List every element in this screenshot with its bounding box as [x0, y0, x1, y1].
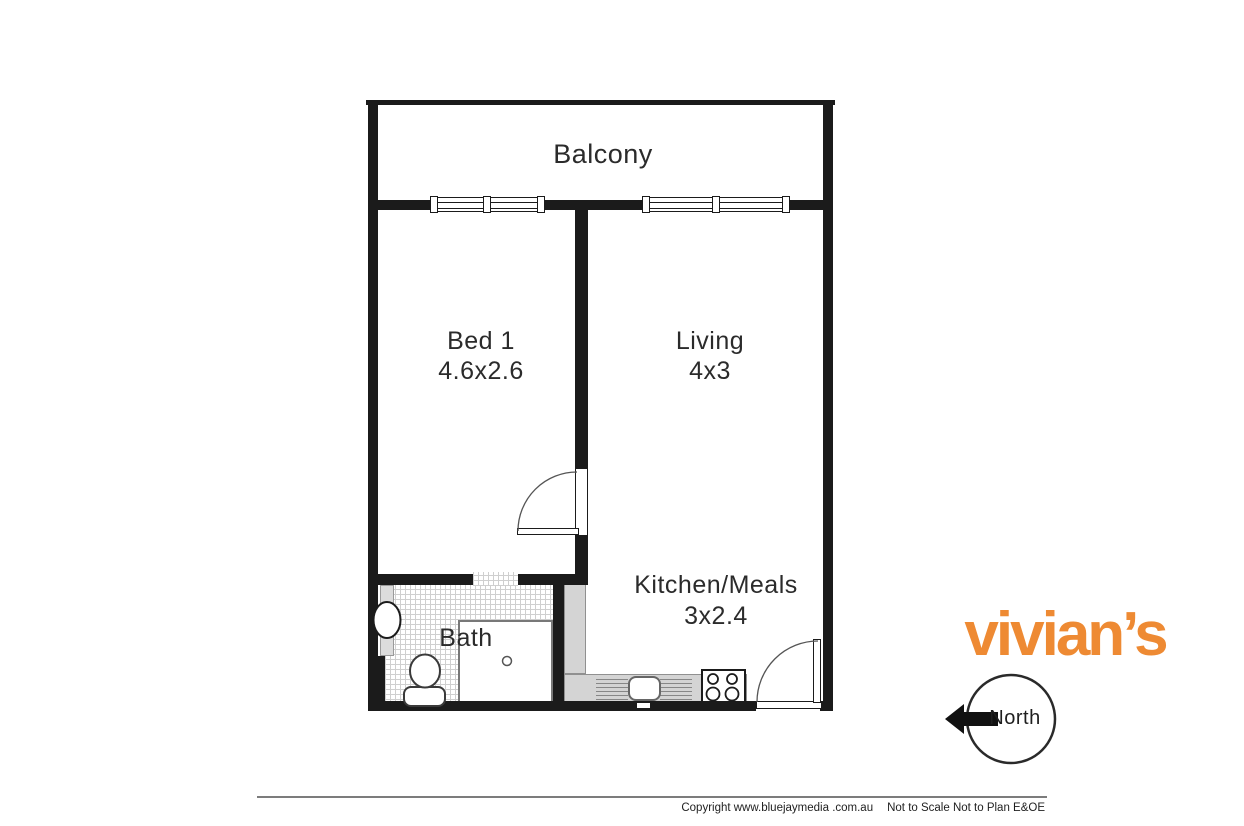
north-label: North: [974, 707, 1056, 730]
cooktop: [701, 669, 746, 704]
room-name: Bed 1: [381, 326, 581, 356]
bath-doorway-tiles: [473, 572, 518, 586]
wall-bath-kitchen: [553, 574, 564, 711]
window-mullion: [712, 196, 720, 213]
room-dimensions: 4x3: [610, 356, 810, 386]
balcony-window-left: [430, 197, 545, 212]
bottom-wall-notch: [637, 703, 650, 708]
room-name: Living: [610, 326, 810, 356]
footer-text: Copyright www.bluejaymedia .com.auNot to…: [500, 802, 1045, 814]
room-name: Kitchen/Meals: [591, 570, 841, 601]
wall-balcony-top: [366, 100, 835, 105]
window-mullion: [483, 196, 491, 213]
wall-top-segment-right: [790, 200, 833, 210]
room-label-balcony: Balcony: [453, 139, 753, 169]
wall-bed-living-divider-lower: [575, 536, 588, 578]
balcony-window-right: [642, 197, 790, 212]
floor-plan-canvas: Balcony Bed 1 4.6x2.6 Living 4x3 Kitchen…: [0, 0, 1244, 826]
window-mullion: [430, 196, 438, 213]
footer-divider-line: [257, 796, 1047, 798]
vivians-logo: vivian’s: [950, 601, 1180, 671]
kitchen-counter-vertical: [564, 580, 586, 674]
sink-drainer-right: [660, 679, 692, 700]
wall-bath-stub: [368, 656, 385, 711]
wall-bed-bath-left: [368, 574, 473, 585]
room-dimensions: 4.6x2.6: [381, 356, 581, 386]
bedroom-door-swing-arc: [518, 472, 577, 531]
room-label-bath: Bath: [416, 623, 516, 653]
room-label-living: Living 4x3: [610, 326, 810, 386]
bath-vanity-counter: [380, 585, 394, 656]
window-mullion: [537, 196, 545, 213]
entry-door-swing-arc: [757, 641, 818, 702]
wall-top-segment-left: [368, 200, 430, 210]
room-label-bed1: Bed 1 4.6x2.6: [381, 326, 581, 386]
disclaimer-text: Not to Scale Not to Plan E&OE: [887, 802, 1045, 814]
window-mullion: [782, 196, 790, 213]
room-dimensions: 3x2.4: [591, 601, 841, 632]
wall-top-segment-middle: [545, 200, 642, 210]
room-label-kitchen: Kitchen/Meals 3x2.4: [591, 570, 841, 632]
bedroom-door-leaf: [517, 528, 579, 535]
wall-left: [368, 100, 378, 711]
copyright-text: Copyright www.bluejaymedia .com.au: [681, 802, 873, 814]
sink-drainer-left: [596, 679, 628, 700]
kitchen-sink: [628, 676, 661, 701]
window-mullion: [642, 196, 650, 213]
bedroom-door-frame: [575, 468, 588, 536]
entry-door-leaf: [813, 639, 821, 703]
